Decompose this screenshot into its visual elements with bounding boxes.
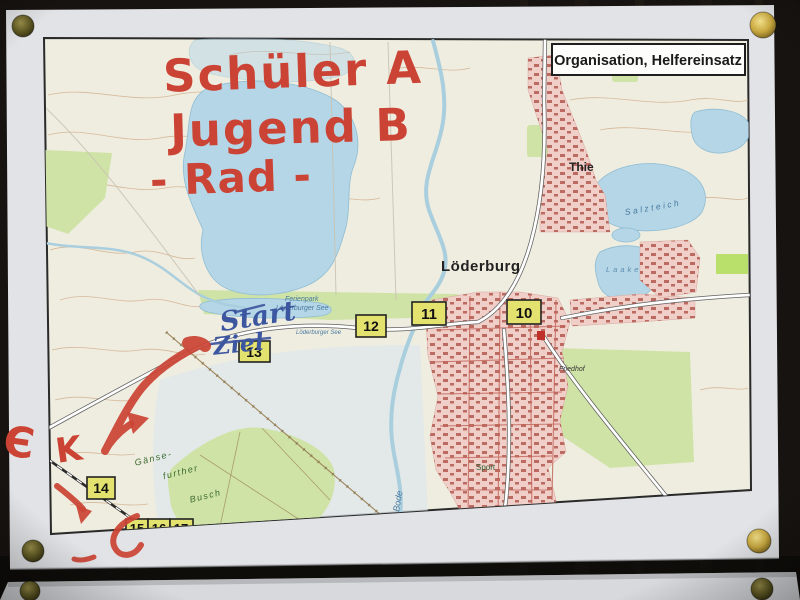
label-loederburg: Löderburg [441,258,521,275]
title-box: Organisation, Helfereinsatz [552,44,745,75]
push-pin-second-sheet-left [20,581,40,600]
label-friedhof: Friedhof [559,366,586,373]
map-photo-svg: Löderburg Thie Salzteich Laake Ferienpar… [0,0,800,600]
red-landmark-symbol [537,331,545,340]
push-pin-second-sheet-right [751,578,773,600]
svg-text:10: 10 [516,305,533,322]
push-pin-bottom-right [747,529,771,553]
photo-of-pinned-map: Löderburg Thie Salzteich Laake Ferienpar… [0,0,800,600]
svg-text:14: 14 [93,480,109,496]
waypoint-box-14: 14 [87,477,115,499]
svg-text:11: 11 [421,306,437,323]
marker-line-schueler: Schüler A [162,41,423,103]
waypoint-box-12: 12 [356,315,386,337]
label-laake: Laake [606,265,641,274]
title-text: Organisation, Helfereinsatz [554,53,742,69]
push-pin-top-right [750,12,776,38]
bright-green-patch [716,254,748,274]
push-pin-bottom-left [22,540,44,562]
label-sport: Sport [476,463,496,472]
svg-text:12: 12 [363,318,379,334]
s-squiggle-tail [74,557,94,560]
push-pin-top-left [12,15,34,37]
label-thie: Thie [569,160,594,174]
waypoint-box-11: 11 [412,302,446,325]
marker-line-jugend: Jugend B [166,98,412,157]
marker-line-rad: - Rad - [149,151,312,206]
label-lake-shore: Löderburger See [296,330,342,336]
waypoint-box-10: 10 [507,300,541,324]
